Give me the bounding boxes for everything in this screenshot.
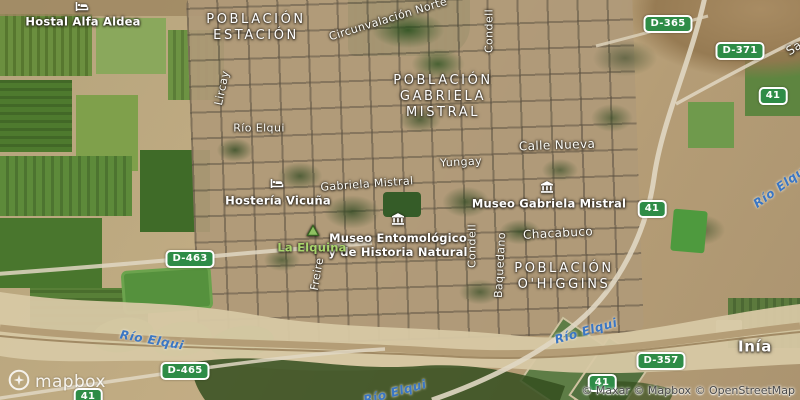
road-shield-d365: D-365	[643, 15, 692, 33]
settlement-label-poblacion-ohiggins: POBLACIÓN O'HIGGINS	[514, 261, 613, 293]
town-label-inia: Inía	[738, 340, 772, 355]
museum-icon[interactable]	[540, 179, 554, 198]
poi-line: Museo Entomológico	[328, 231, 467, 245]
road-shield-41-east: 41	[638, 200, 667, 218]
mapbox-logo[interactable]: mapbox	[8, 369, 106, 395]
street-label-rio-elqui-street: Río Elqui	[233, 123, 285, 134]
street-label-chacabuco: Chacabuco	[523, 225, 594, 241]
street-label-calle-nueva: Calle Nueva	[519, 138, 596, 153]
map-canvas[interactable]: POBLACIÓN ESTACIÓN POBLACIÓN GABRIELA MI…	[0, 0, 800, 400]
settlement-label-poblacion-gabriela-mistral: POBLACIÓN GABRIELA MISTRAL	[393, 73, 492, 121]
settlement-line: POBLACIÓN	[393, 73, 492, 89]
poi-label-hostal-alfa-aldea[interactable]: Hostal Alfa Aldea	[25, 16, 140, 28]
settlement-line: MISTRAL	[393, 105, 492, 121]
street-label-condell-south: Condell	[467, 224, 478, 268]
poi-label-museo-entomologico[interactable]: Museo Entomológico y de Historia Natural	[328, 231, 467, 259]
settlement-line: GABRIELA	[393, 89, 492, 105]
road-shield-d357: D-357	[636, 352, 685, 370]
poi-label-museo-gabriela-mistral[interactable]: Museo Gabriela Mistral	[472, 198, 626, 210]
road-shield-d463: D-463	[165, 250, 214, 268]
poi-label-hosteria-vicuna[interactable]: Hostería Vicuña	[225, 195, 331, 207]
street-label-yungay: Yungay	[440, 155, 483, 168]
road-shield-41-northeast: 41	[759, 87, 788, 105]
lodging-icon[interactable]	[270, 175, 284, 194]
map-attribution[interactable]: © Maxar © Mapbox © OpenStreetMap	[581, 384, 795, 397]
street-label-baquedano: Baquedano	[493, 232, 507, 299]
settlement-line: POBLACIÓN	[514, 261, 613, 277]
poi-label-la-elquina[interactable]: La Elquina	[277, 242, 346, 254]
settlement-line: ESTACIÓN	[206, 28, 305, 44]
road-shield-d371: D-371	[715, 42, 764, 60]
mapbox-logo-text: mapbox	[35, 372, 106, 392]
settlement-line: O'HIGGINS	[514, 277, 613, 293]
settlement-label-poblacion-estacion: POBLACIÓN ESTACIÓN	[206, 12, 305, 44]
museum-icon[interactable]	[391, 211, 405, 230]
poi-line: y de Historia Natural	[328, 245, 467, 259]
settlement-line: POBLACIÓN	[206, 12, 305, 28]
street-label-condell-north: Condell	[484, 9, 495, 53]
road-shield-d465: D-465	[160, 362, 209, 380]
mapbox-logo-icon	[8, 369, 30, 395]
park-icon[interactable]	[307, 222, 320, 241]
